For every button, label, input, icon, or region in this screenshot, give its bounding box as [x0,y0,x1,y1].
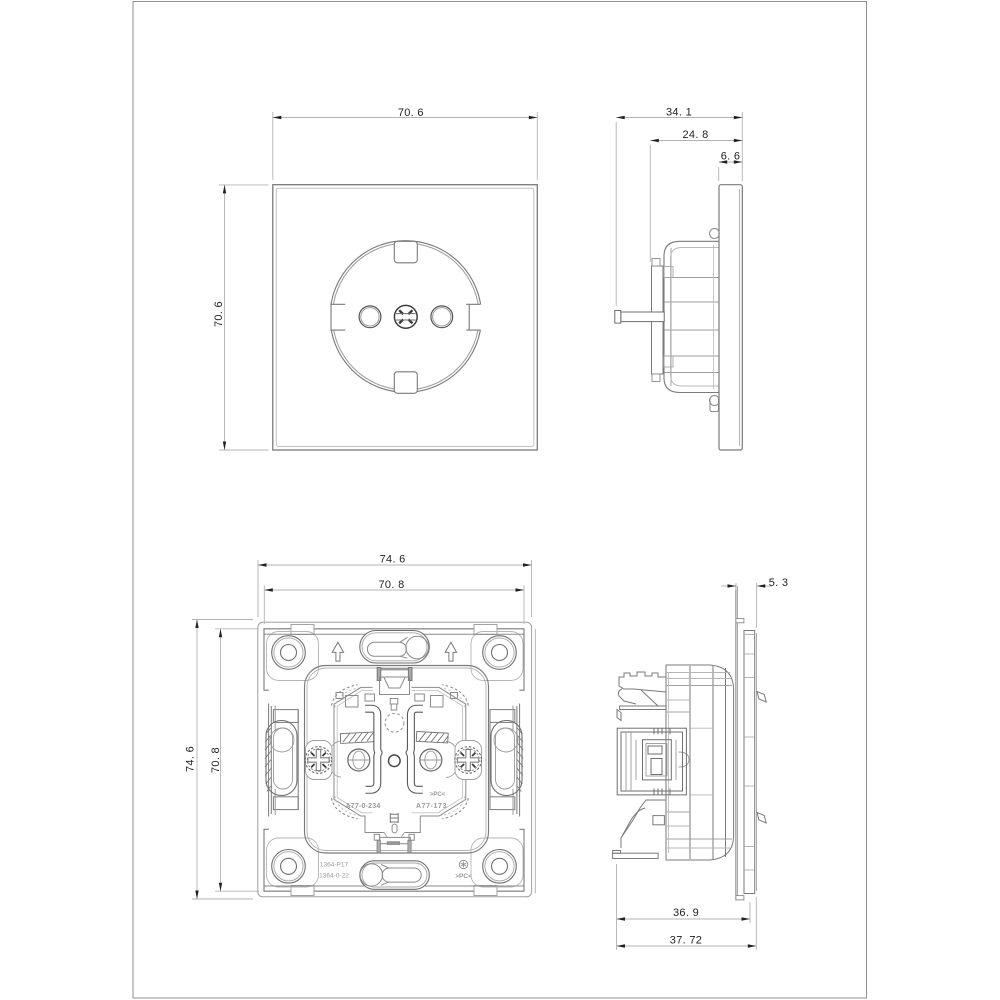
svg-text:24. 8: 24. 8 [683,129,709,141]
svg-text:1364-P17: 1364-P17 [320,862,349,869]
svg-text:1364-0-22: 1364-0-22 [319,873,349,880]
svg-text:70. 6: 70. 6 [398,107,424,119]
svg-text:37. 72: 37. 72 [670,935,702,947]
svg-text:>PC<: >PC< [430,792,446,798]
svg-text:>PC<: >PC< [455,873,472,880]
svg-text:5. 3: 5. 3 [769,577,789,589]
svg-text:74. 6: 74. 6 [185,746,197,772]
svg-text:70. 8: 70. 8 [379,579,405,591]
svg-text:A77-173: A77-173 [416,803,447,810]
svg-text:34. 1: 34. 1 [666,107,692,119]
svg-text:70. 6: 70. 6 [213,301,225,327]
svg-text:70. 8: 70. 8 [210,747,222,773]
svg-text:74. 6: 74. 6 [380,554,406,566]
svg-text:6. 6: 6. 6 [721,151,741,163]
svg-text:A77-0-234: A77-0-234 [346,803,381,810]
svg-text:36. 9: 36. 9 [673,907,699,919]
